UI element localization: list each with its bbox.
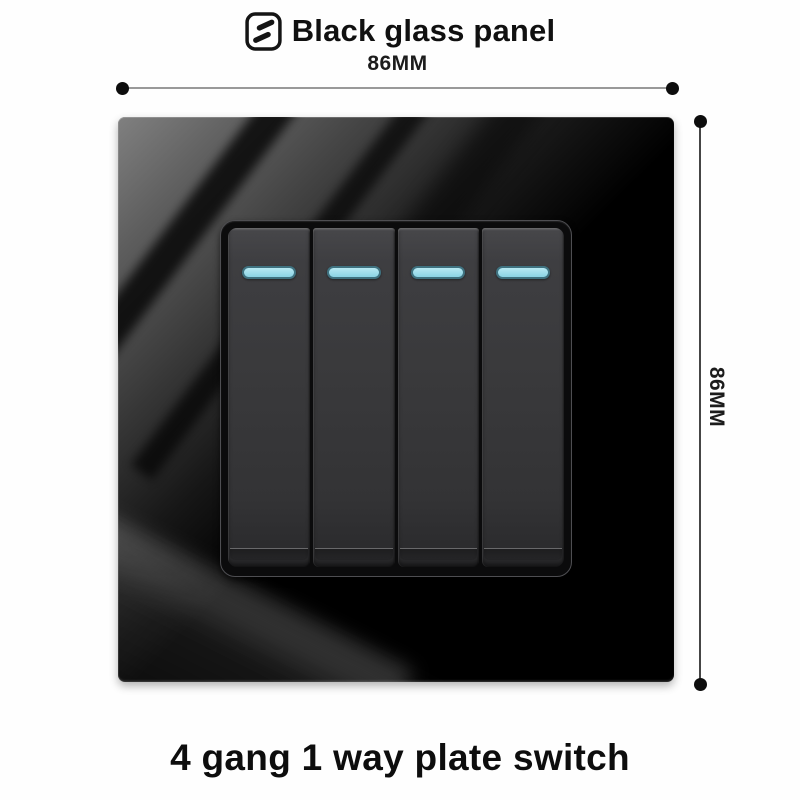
- indicator-light: [411, 266, 465, 279]
- right-dimension-label: 86MM: [704, 367, 728, 427]
- dimension-endpoint-dot: [666, 82, 679, 95]
- switch-rocker-4: [482, 228, 564, 567]
- rocker-group: [228, 228, 564, 567]
- dimension-endpoint-dot: [116, 82, 129, 95]
- switch-symbol-icon: [245, 12, 282, 51]
- glass-panel: [118, 117, 674, 682]
- right-dimension-line: [699, 121, 701, 684]
- switch-rocker-3: [398, 228, 480, 567]
- header: Black glass panel: [0, 8, 800, 54]
- header-title: Black glass panel: [292, 13, 556, 49]
- dimension-endpoint-dot: [694, 115, 707, 128]
- indicator-light: [496, 266, 550, 279]
- indicator-light: [327, 266, 381, 279]
- product-title: 4 gang 1 way plate switch: [0, 737, 800, 779]
- top-dimension-line: [123, 87, 672, 89]
- switch-module: [220, 220, 572, 577]
- switch-rocker-2: [313, 228, 395, 567]
- dimension-endpoint-dot: [694, 678, 707, 691]
- top-dimension-label: 86MM: [122, 52, 673, 76]
- product-image-stage: Black glass panel 86MM 86MM: [0, 0, 800, 800]
- switch-rocker-1: [228, 228, 310, 567]
- indicator-light: [242, 266, 296, 279]
